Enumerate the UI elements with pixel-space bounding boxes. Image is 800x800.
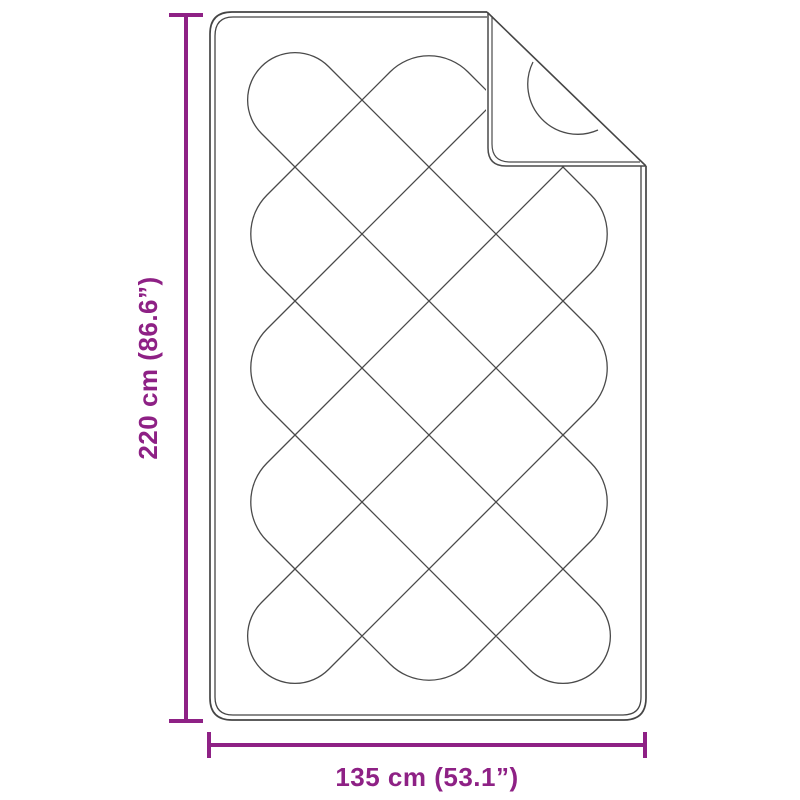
product-dimension-diagram: 220 cm (86.6”) 135 cm (53.1”) — [0, 0, 800, 800]
height-dimension-label: 220 cm (86.6”) — [133, 276, 163, 459]
diagram-canvas: 220 cm (86.6”) 135 cm (53.1”) — [0, 0, 800, 800]
width-dimension-label: 135 cm (53.1”) — [335, 762, 518, 792]
background — [0, 0, 800, 800]
